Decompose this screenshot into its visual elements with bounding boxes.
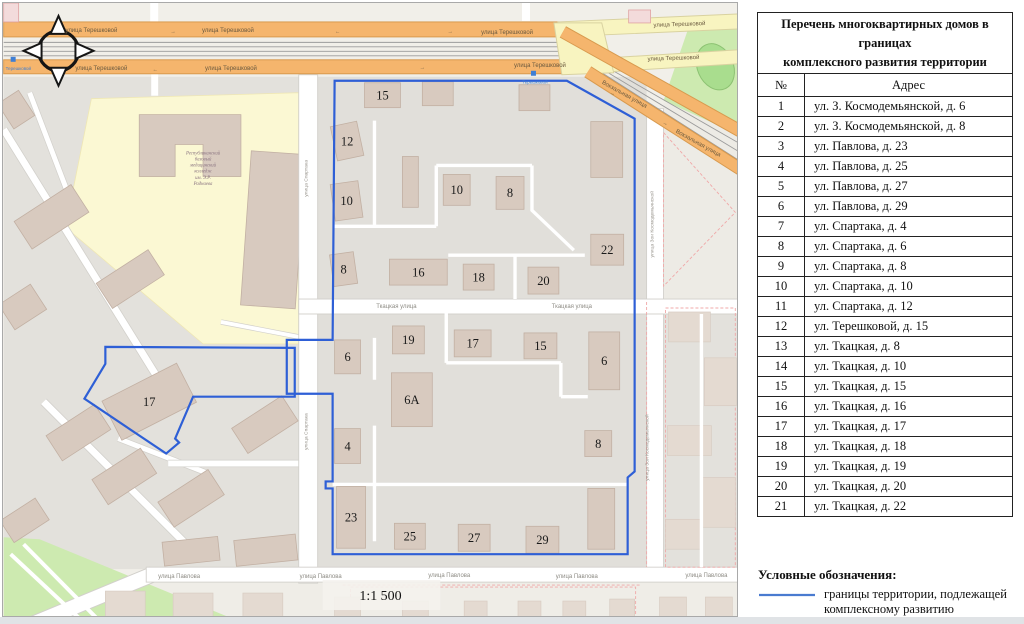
building-faded: [705, 597, 732, 616]
one-way-arrow-icon: ←: [335, 29, 340, 35]
row-address-cell: ул. Спартака, д. 8: [805, 257, 1013, 277]
table-row: 21ул. Ткацкая, д. 22: [758, 497, 1013, 517]
one-way-arrow-icon: →: [448, 29, 453, 35]
row-address-cell: ул. Павлова, д. 25: [805, 157, 1013, 177]
building-number-label: 12: [341, 134, 353, 148]
map-svg: 151210108816182022619171566А482325272917…: [3, 3, 737, 616]
building-number-label: 10: [340, 194, 352, 208]
building: [422, 82, 453, 106]
building-number-label: 16: [412, 265, 424, 279]
building-faded: [243, 593, 283, 616]
row-number-cell: 17: [758, 417, 805, 437]
row-number-cell: 1: [758, 97, 805, 117]
building-number-label: 8: [595, 437, 601, 451]
column-header-number: №: [758, 74, 805, 97]
street-label: улица Павлова: [300, 574, 343, 580]
row-address-cell: ул. Ткацкая, д. 10: [805, 357, 1013, 377]
building-faded: [464, 601, 487, 616]
transit-stop-icon: [531, 71, 536, 76]
transit-stop-icon: [11, 57, 16, 62]
table-row: 7ул. Спартака, д. 4: [758, 217, 1013, 237]
street-label: улица Терешковой: [481, 29, 533, 36]
table-row: 12ул. Терешковой, д. 15: [758, 317, 1013, 337]
street-spartaka: [299, 75, 318, 583]
row-number-cell: 8: [758, 237, 805, 257]
one-way-arrow-icon: →: [420, 65, 425, 71]
poi-building: [629, 10, 651, 23]
table-row: 19ул. Ткацкая, д. 19: [758, 457, 1013, 477]
building-number-label: 29: [536, 533, 548, 547]
building-faded: [668, 426, 712, 456]
row-number-cell: 13: [758, 337, 805, 357]
table-row: 10ул. Спартака, д. 10: [758, 277, 1013, 297]
row-address-cell: ул. Терешковой, д. 15: [805, 317, 1013, 337]
one-way-arrow-icon: →: [170, 29, 175, 35]
building-number-label: 8: [507, 186, 513, 200]
table-row: 2ул. З. Космодемьянской, д. 8: [758, 117, 1013, 137]
row-address-cell: ул. Ткацкая, д. 8: [805, 337, 1013, 357]
row-number-cell: 6: [758, 197, 805, 217]
row-address-cell: ул. З. Космодемьянской, д. 8: [805, 117, 1013, 137]
row-number-cell: 19: [758, 457, 805, 477]
building-number-label: 6: [601, 354, 607, 368]
street-label: улица Зои Космодемьянской: [644, 414, 651, 481]
table-row: 14ул. Ткацкая, д. 10: [758, 357, 1013, 377]
building-number-label: 6: [344, 350, 350, 364]
transit-stop-label: Терешковой: [522, 79, 548, 85]
address-table-panel: Перечень многоквартирных домов в граница…: [757, 12, 1013, 517]
table-header-row: № Адрес: [758, 74, 1013, 97]
table-row: 15ул. Ткацкая, д. 15: [758, 377, 1013, 397]
table-row: 9ул. Спартака, д. 8: [758, 257, 1013, 277]
legend-item-label: границы территории, подлежащей комплексн…: [824, 587, 1007, 618]
building-faded: [660, 597, 687, 616]
row-number-cell: 21: [758, 497, 805, 517]
building-faded: [173, 593, 213, 616]
row-number-cell: 12: [758, 317, 805, 337]
row-address-cell: ул. Спартака, д. 4: [805, 217, 1013, 237]
building-faded: [701, 477, 735, 527]
row-address-cell: ул. Павлова, д. 29: [805, 197, 1013, 217]
transit-stop-label: Терешковой: [6, 65, 32, 71]
row-address-cell: ул. Спартака, д. 12: [805, 297, 1013, 317]
address-table-body: Перечень многоквартирных домов в граница…: [758, 13, 1013, 517]
street-label: улица Павлова: [428, 573, 471, 579]
street-label: улица Терешковой: [514, 62, 566, 69]
table-row: 3ул. Павлова, д. 23: [758, 137, 1013, 157]
street-label: Ткацкая улица: [552, 304, 593, 310]
street-label: улица Терешковой: [202, 27, 254, 34]
table-row: 1ул. З. Космодемьянской, д. 6: [758, 97, 1013, 117]
table-row: 18ул. Ткацкая, д. 18: [758, 437, 1013, 457]
street-label: улица Спартака: [304, 160, 310, 197]
row-address-cell: ул. Ткацкая, д. 18: [805, 437, 1013, 457]
one-way-arrow-icon: ←: [63, 29, 68, 35]
legend-boundary-line: [758, 593, 816, 597]
street-label: улица Павлова: [158, 574, 201, 580]
table-row: 11ул. Спартака, д. 12: [758, 297, 1013, 317]
row-number-cell: 11: [758, 297, 805, 317]
street-label: улица Терешковой: [65, 27, 117, 34]
table-row: 4ул. Павлова, д. 25: [758, 157, 1013, 177]
building: [591, 122, 623, 178]
row-address-cell: ул. Павлова, д. 27: [805, 177, 1013, 197]
row-number-cell: 9: [758, 257, 805, 277]
street-label: улица Терешковой: [75, 65, 127, 72]
street-label: улица Павлова: [556, 574, 599, 580]
table-row: 20ул. Ткацкая, д. 20: [758, 477, 1013, 497]
street-label: улица Павлова: [685, 573, 728, 579]
row-number-cell: 4: [758, 157, 805, 177]
legend-heading: Условные обозначения:: [758, 567, 1018, 583]
street-label: улица Терешковой: [205, 65, 257, 72]
building-faded: [563, 601, 586, 616]
table-row: 8ул. Спартака, д. 6: [758, 237, 1013, 257]
building-faded: [666, 519, 702, 549]
college-building: [241, 151, 306, 309]
scale-label: 1:1 500: [359, 589, 401, 604]
building-number-label: 10: [450, 183, 462, 197]
address-table: Перечень многоквартирных домов в граница…: [757, 12, 1013, 517]
building-number-label: 27: [468, 531, 480, 545]
row-address-cell: ул. Спартака, д. 10: [805, 277, 1013, 297]
building-number-label: 8: [340, 262, 346, 276]
row-number-cell: 10: [758, 277, 805, 297]
row-address-cell: ул. Павлова, д. 23: [805, 137, 1013, 157]
building-faded: [610, 599, 635, 616]
table-title: Перечень многоквартирных домов в граница…: [758, 13, 1013, 74]
street-label: улица Спартака: [304, 413, 310, 450]
building-faded: [704, 358, 736, 406]
building-faded: [518, 601, 541, 616]
column-header-address: Адрес: [805, 74, 1013, 97]
building-faded: [105, 591, 145, 616]
row-number-cell: 16: [758, 397, 805, 417]
map-panel: 151210108816182022619171566А482325272917…: [2, 2, 738, 617]
building: [402, 156, 418, 207]
compass-east-arrow: [75, 43, 93, 59]
row-number-cell: 2: [758, 117, 805, 137]
building-number-label: 17: [466, 337, 478, 351]
row-number-cell: 14: [758, 357, 805, 377]
building-number-label: 19: [402, 333, 414, 347]
street-label: Ткацкая улица: [376, 304, 417, 310]
row-number-cell: 7: [758, 217, 805, 237]
street-kosmodemyanskoy: [647, 109, 664, 571]
table-row: 6ул. Павлова, д. 29: [758, 197, 1013, 217]
building: [519, 85, 550, 111]
building: [588, 488, 615, 549]
table-row: 16ул. Ткацкая, д. 16: [758, 397, 1013, 417]
row-number-cell: 20: [758, 477, 805, 497]
legend: Условные обозначения: границы территории…: [758, 567, 1018, 618]
row-address-cell: ул. Спартака, д. 6: [805, 237, 1013, 257]
building-number-label: 22: [601, 243, 613, 257]
row-address-cell: ул. Ткацкая, д. 16: [805, 397, 1013, 417]
building-number-label: 20: [537, 274, 549, 288]
building-number-label: 23: [345, 511, 357, 525]
row-number-cell: 5: [758, 177, 805, 197]
row-number-cell: 15: [758, 377, 805, 397]
row-address-cell: ул. Ткацкая, д. 15: [805, 377, 1013, 397]
street-label: улица Зои Космодемьянской: [649, 191, 656, 258]
building-number-label: 15: [534, 339, 546, 353]
building-number-label: 15: [376, 88, 388, 102]
row-address-cell: ул. Ткацкая, д. 20: [805, 477, 1013, 497]
row-address-cell: ул. Ткацкая, д. 19: [805, 457, 1013, 477]
building-number-label: 25: [404, 530, 416, 544]
row-number-cell: 3: [758, 137, 805, 157]
table-row: 13ул. Ткацкая, д. 8: [758, 337, 1013, 357]
compass-west-arrow: [24, 43, 42, 59]
building-number-label: 17: [143, 395, 155, 409]
row-number-cell: 18: [758, 437, 805, 457]
table-row: 17ул. Ткацкая, д. 17: [758, 417, 1013, 437]
row-address-cell: ул. Ткацкая, д. 22: [805, 497, 1013, 517]
building-number-label: 4: [344, 439, 351, 453]
row-address-cell: ул. З. Космодемьянской, д. 6: [805, 97, 1013, 117]
building-number-label: 18: [472, 270, 484, 284]
row-address-cell: ул. Ткацкая, д. 17: [805, 417, 1013, 437]
one-way-arrow-icon: ←: [152, 67, 157, 73]
window-bottom-strip: [0, 617, 1024, 624]
table-row: 5ул. Павлова, д. 27: [758, 177, 1013, 197]
building-faded: [669, 312, 711, 342]
poi-building: [4, 3, 19, 22]
building-number-label: 6А: [404, 393, 419, 407]
